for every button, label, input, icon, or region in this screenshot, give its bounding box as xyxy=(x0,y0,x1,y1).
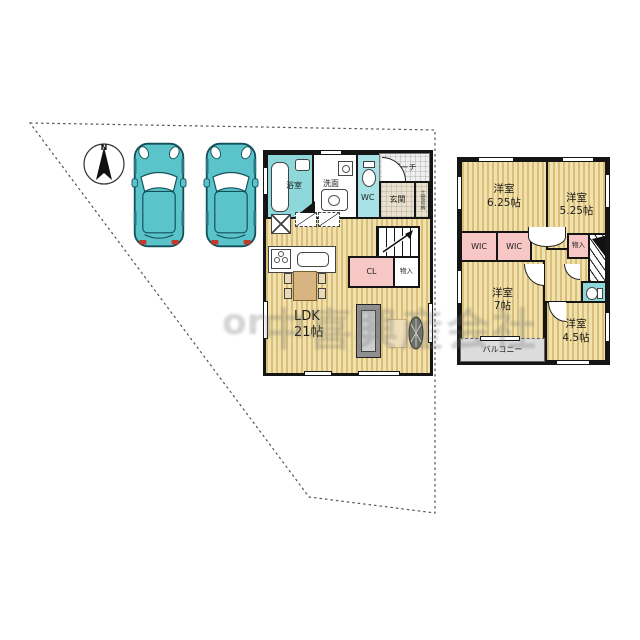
room-525-name: 洋室 xyxy=(566,192,587,205)
room-wc: WC xyxy=(356,153,381,219)
closet-label: CL xyxy=(366,267,376,277)
floor2-plan: 洋室 6.25帖 洋室 5.25帖 WIC WIC 物入 洋室 7帖 バルコニー… xyxy=(457,157,610,365)
door-arc xyxy=(564,264,580,280)
kitchen-cabinet xyxy=(295,212,317,227)
dining-chair xyxy=(318,288,326,299)
room-625-size: 6.25帖 xyxy=(487,197,521,210)
window xyxy=(320,150,342,155)
room-storage-1f: 物入 xyxy=(393,256,420,288)
stairs-1f xyxy=(376,226,420,258)
entrance-label: 玄関 xyxy=(390,195,406,205)
bath-label: 浴室 xyxy=(286,181,302,191)
balcony-label: バルコニー xyxy=(483,345,523,355)
washer-drum xyxy=(342,165,350,173)
dining-chair xyxy=(318,273,326,284)
window xyxy=(457,270,462,304)
storage-label-1f: 物入 xyxy=(400,268,413,275)
kitchen-hatch-box xyxy=(271,214,291,234)
washroom-label: 洗面 xyxy=(323,179,339,189)
doma-label: 土間収納 xyxy=(420,190,425,210)
tv-screen xyxy=(361,310,376,352)
room-45-size: 4.5帖 xyxy=(562,332,589,345)
room-625-name: 洋室 xyxy=(494,183,515,196)
room-closet: CL xyxy=(348,256,395,288)
wc-label: WC xyxy=(361,193,375,203)
window xyxy=(562,157,594,162)
stairs-wedge xyxy=(590,236,605,256)
window xyxy=(304,371,332,376)
floor1-plan: 浴室 洗面 WC ポーチ 玄関 土間収納 CL 物入 xyxy=(263,150,433,376)
compass-north-label: N xyxy=(101,143,108,152)
room-doma-storage: 土間収納 xyxy=(414,181,430,219)
dining-chair xyxy=(284,273,292,284)
toilet-bowl xyxy=(362,169,376,187)
toilet-icon xyxy=(363,161,375,168)
toilet-bowl xyxy=(586,287,598,300)
window xyxy=(478,157,514,162)
storage-label-2f: 物入 xyxy=(572,242,585,249)
room-wic-1: WIC xyxy=(460,231,498,262)
door-swing-wedge xyxy=(300,201,315,213)
rug xyxy=(387,319,407,348)
room-525-size: 5.25帖 xyxy=(560,205,594,218)
window xyxy=(358,371,400,376)
room-7-size: 7帖 xyxy=(494,300,511,313)
floorplan-page: { "site": { "compass_label": "N", "cars"… xyxy=(0,0,640,640)
room-wic-2: WIC xyxy=(496,231,532,262)
car-icon xyxy=(131,141,187,249)
room-yoshitsu-625: 洋室 6.25帖 xyxy=(460,160,548,233)
kitchen-sink-icon xyxy=(297,252,329,267)
wic1-label: WIC xyxy=(471,242,487,252)
stove-burner xyxy=(274,257,280,263)
door-arc xyxy=(528,227,566,247)
room-45-name: 洋室 xyxy=(566,318,587,331)
compass-icon: N xyxy=(82,139,126,187)
room-entrance: 玄関 xyxy=(379,181,416,219)
sink-bowl xyxy=(328,195,340,206)
window xyxy=(556,360,590,365)
bath-counter xyxy=(295,159,310,171)
plant-icon xyxy=(408,316,424,350)
ldk-label: LDK 21帖 xyxy=(294,309,350,342)
room-7-name: 洋室 xyxy=(492,287,513,300)
dining-table xyxy=(293,271,317,301)
window xyxy=(480,336,520,341)
stairs-2f xyxy=(588,233,607,283)
stove-burner xyxy=(282,257,288,263)
wic2-label: WIC xyxy=(506,242,522,252)
window xyxy=(605,174,610,208)
window xyxy=(263,167,268,195)
stairs-up-arrow xyxy=(379,228,419,256)
stove-burner xyxy=(278,251,284,257)
car-icon xyxy=(203,141,259,249)
room-balcony: バルコニー xyxy=(460,338,545,362)
window xyxy=(263,301,268,339)
window xyxy=(457,176,462,210)
window xyxy=(605,312,610,342)
kitchen-cabinet xyxy=(318,212,340,227)
room-storage-2f: 物入 xyxy=(567,233,590,259)
room-washroom: 洗面 xyxy=(312,153,358,219)
window xyxy=(428,303,433,343)
dining-chair xyxy=(284,288,292,299)
